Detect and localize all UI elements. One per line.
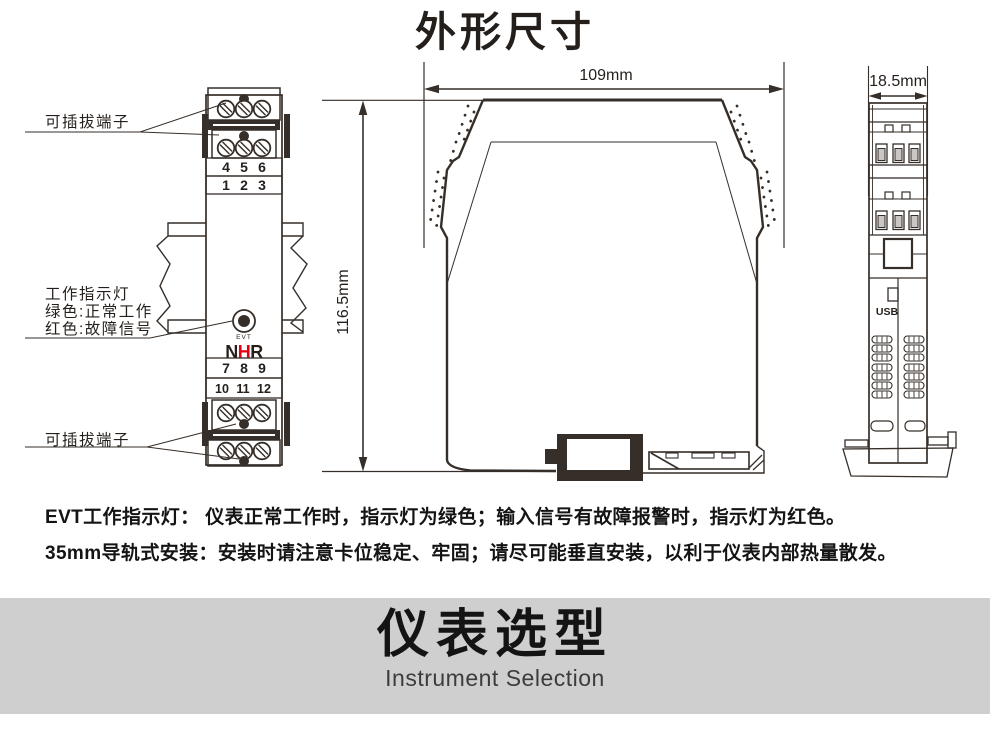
din-rail: [157, 223, 307, 333]
depth-dimension-18-5mm: 18.5mm: [869, 73, 927, 90]
terminal-5: 5: [240, 159, 248, 175]
height-dimension-116-5mm: 116.5mm: [335, 269, 352, 335]
page-title: 外形尺寸: [415, 9, 595, 55]
terminal-9: 9: [258, 360, 266, 376]
logo-letter-h: H: [238, 342, 251, 362]
note-rail-mounting: 35mm导轨式安装：安装时请注意卡位稳定、牢固；请尽可能垂直安装，以利于仪表内部…: [45, 538, 897, 565]
terminal-6: 6: [258, 159, 266, 175]
terminal-2: 2: [240, 177, 248, 193]
bottom-terminal-callout: 可插拔端子: [45, 431, 130, 449]
top-terminal-block: [202, 88, 290, 158]
side-view-drawing: 109mm 116.5mm: [322, 62, 784, 481]
terminal-3: 3: [258, 177, 266, 193]
side-view-housing: [430, 100, 775, 471]
terminal-12: 12: [257, 382, 271, 396]
usb-label: USB: [876, 306, 899, 318]
datasheet-page: 外形尺寸 4 5: [0, 0, 990, 739]
terminal-10: 10: [215, 382, 229, 396]
usb-port: [888, 288, 898, 301]
terminal-4: 4: [222, 159, 230, 175]
note-evt-indicator: EVT工作指示灯： 仪表正常工作时，指示灯为绿色；输入信号有故障报警时，指示灯为…: [45, 502, 845, 529]
terminal-11: 11: [236, 382, 249, 396]
width-dimension-109mm: 109mm: [579, 67, 632, 84]
front-view-drawing: 4 5 6 1 2 3 EVT NHR 7 8 9 10 11 12: [25, 88, 307, 466]
top-terminal-callout: 可插拔端子: [45, 113, 130, 131]
terminal-numbers-top: 4 5 6 1 2 3: [206, 158, 282, 194]
rail-clip-assembly: [545, 434, 764, 481]
end-view-rail: [843, 432, 956, 477]
banner-title: 仪表选型: [0, 598, 990, 666]
section-banner: 仪表选型 Instrument Selection: [0, 598, 990, 714]
terminal-numbers-bottom: 7 8 9 10 11 12: [206, 358, 282, 398]
indicator-callout-line3: 红色:故障信号: [45, 320, 153, 338]
nhr-logo: NHR: [225, 342, 263, 362]
banner-subtitle: Instrument Selection: [0, 666, 990, 690]
end-view-body: USB: [869, 103, 927, 463]
logo-letter-n: N: [225, 342, 238, 362]
end-view-drawing: 18.5mm: [843, 66, 956, 477]
indicator-callout-line1: 工作指示灯: [45, 285, 130, 303]
evt-label: EVT: [236, 334, 252, 341]
terminal-8: 8: [240, 360, 248, 376]
terminal-7: 7: [222, 360, 230, 376]
terminal-1: 1: [222, 177, 230, 193]
indicator-callout-line2: 绿色:正常工作: [45, 303, 153, 321]
end-view-dimensions: 18.5mm: [869, 66, 928, 196]
logo-letter-r: R: [250, 342, 263, 362]
side-view-dimensions: 109mm 116.5mm: [322, 62, 784, 472]
evt-indicator-led: EVT: [233, 310, 255, 341]
